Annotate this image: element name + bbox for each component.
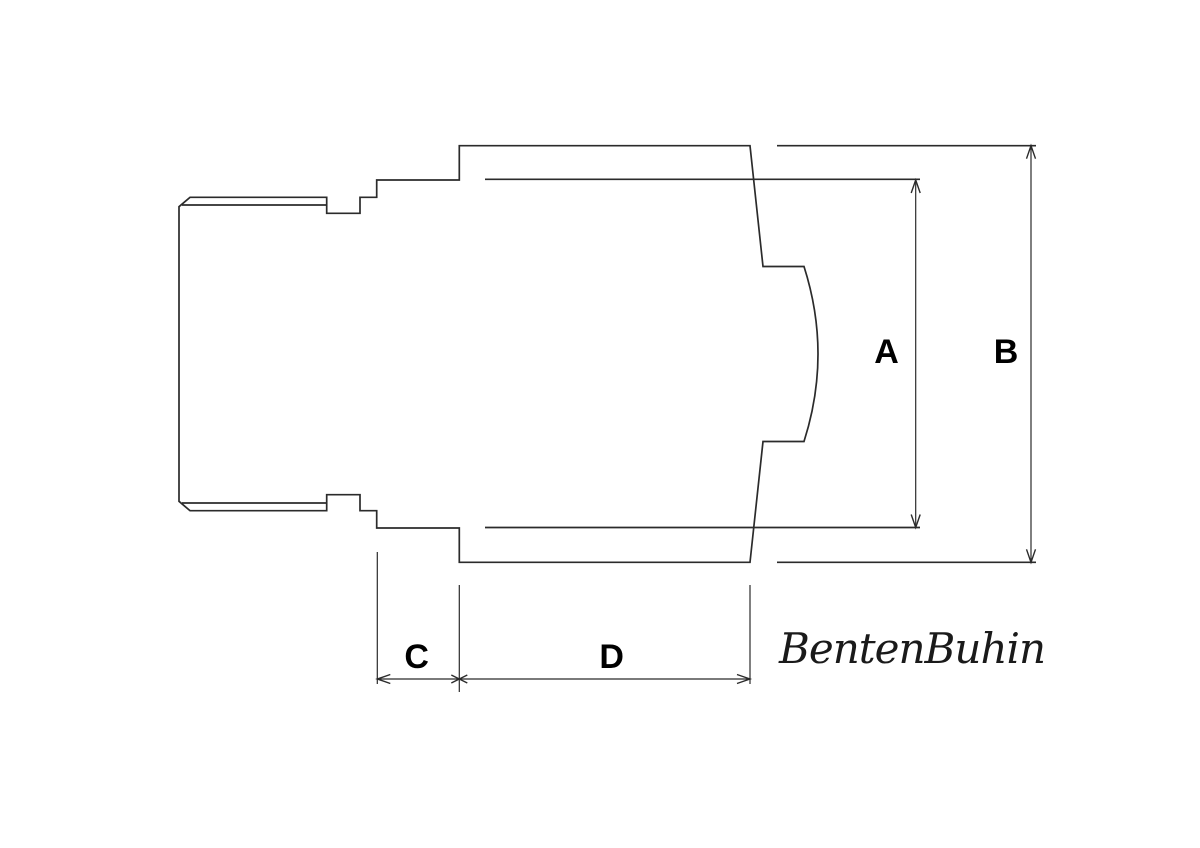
dimension-label-d: D <box>599 638 624 676</box>
part-outline-group <box>179 146 1036 563</box>
drawing-page: A B C D BentenBuhin <box>0 0 1200 848</box>
dimension-label-c: C <box>404 638 429 676</box>
dimension-label-b: B <box>994 333 1019 371</box>
brand-watermark: BentenBuhin <box>778 624 1045 673</box>
dimension-label-a: A <box>874 333 899 371</box>
part-outline-path <box>179 146 818 563</box>
technical-drawing-canvas: A B C D BentenBuhin <box>0 0 1200 848</box>
dimension-lines-group <box>377 146 1035 692</box>
